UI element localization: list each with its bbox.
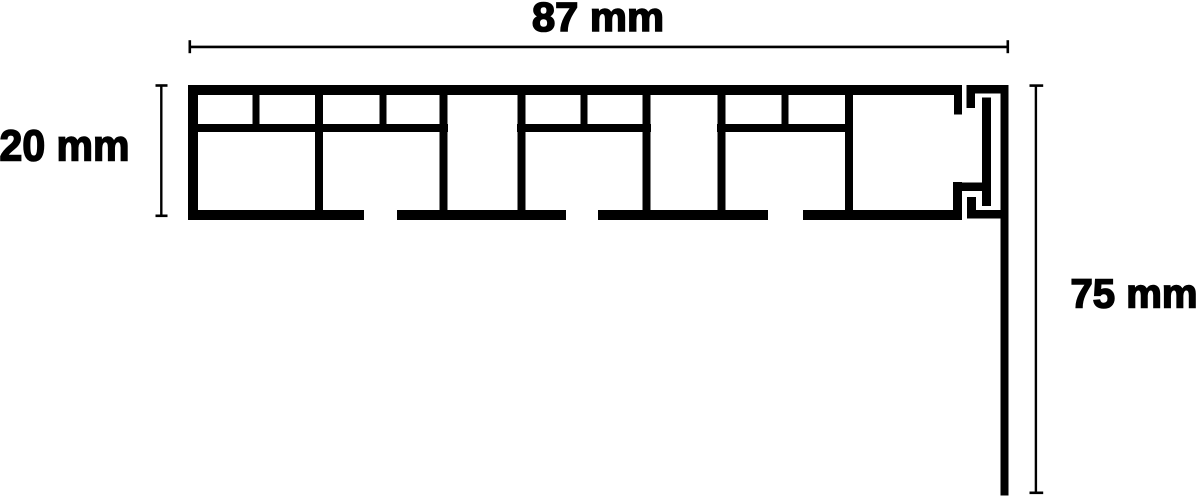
svg-text:75 mm: 75 mm [1071,270,1198,316]
svg-text:87 mm: 87 mm [532,0,664,40]
svg-text:20 mm: 20 mm [0,123,130,171]
